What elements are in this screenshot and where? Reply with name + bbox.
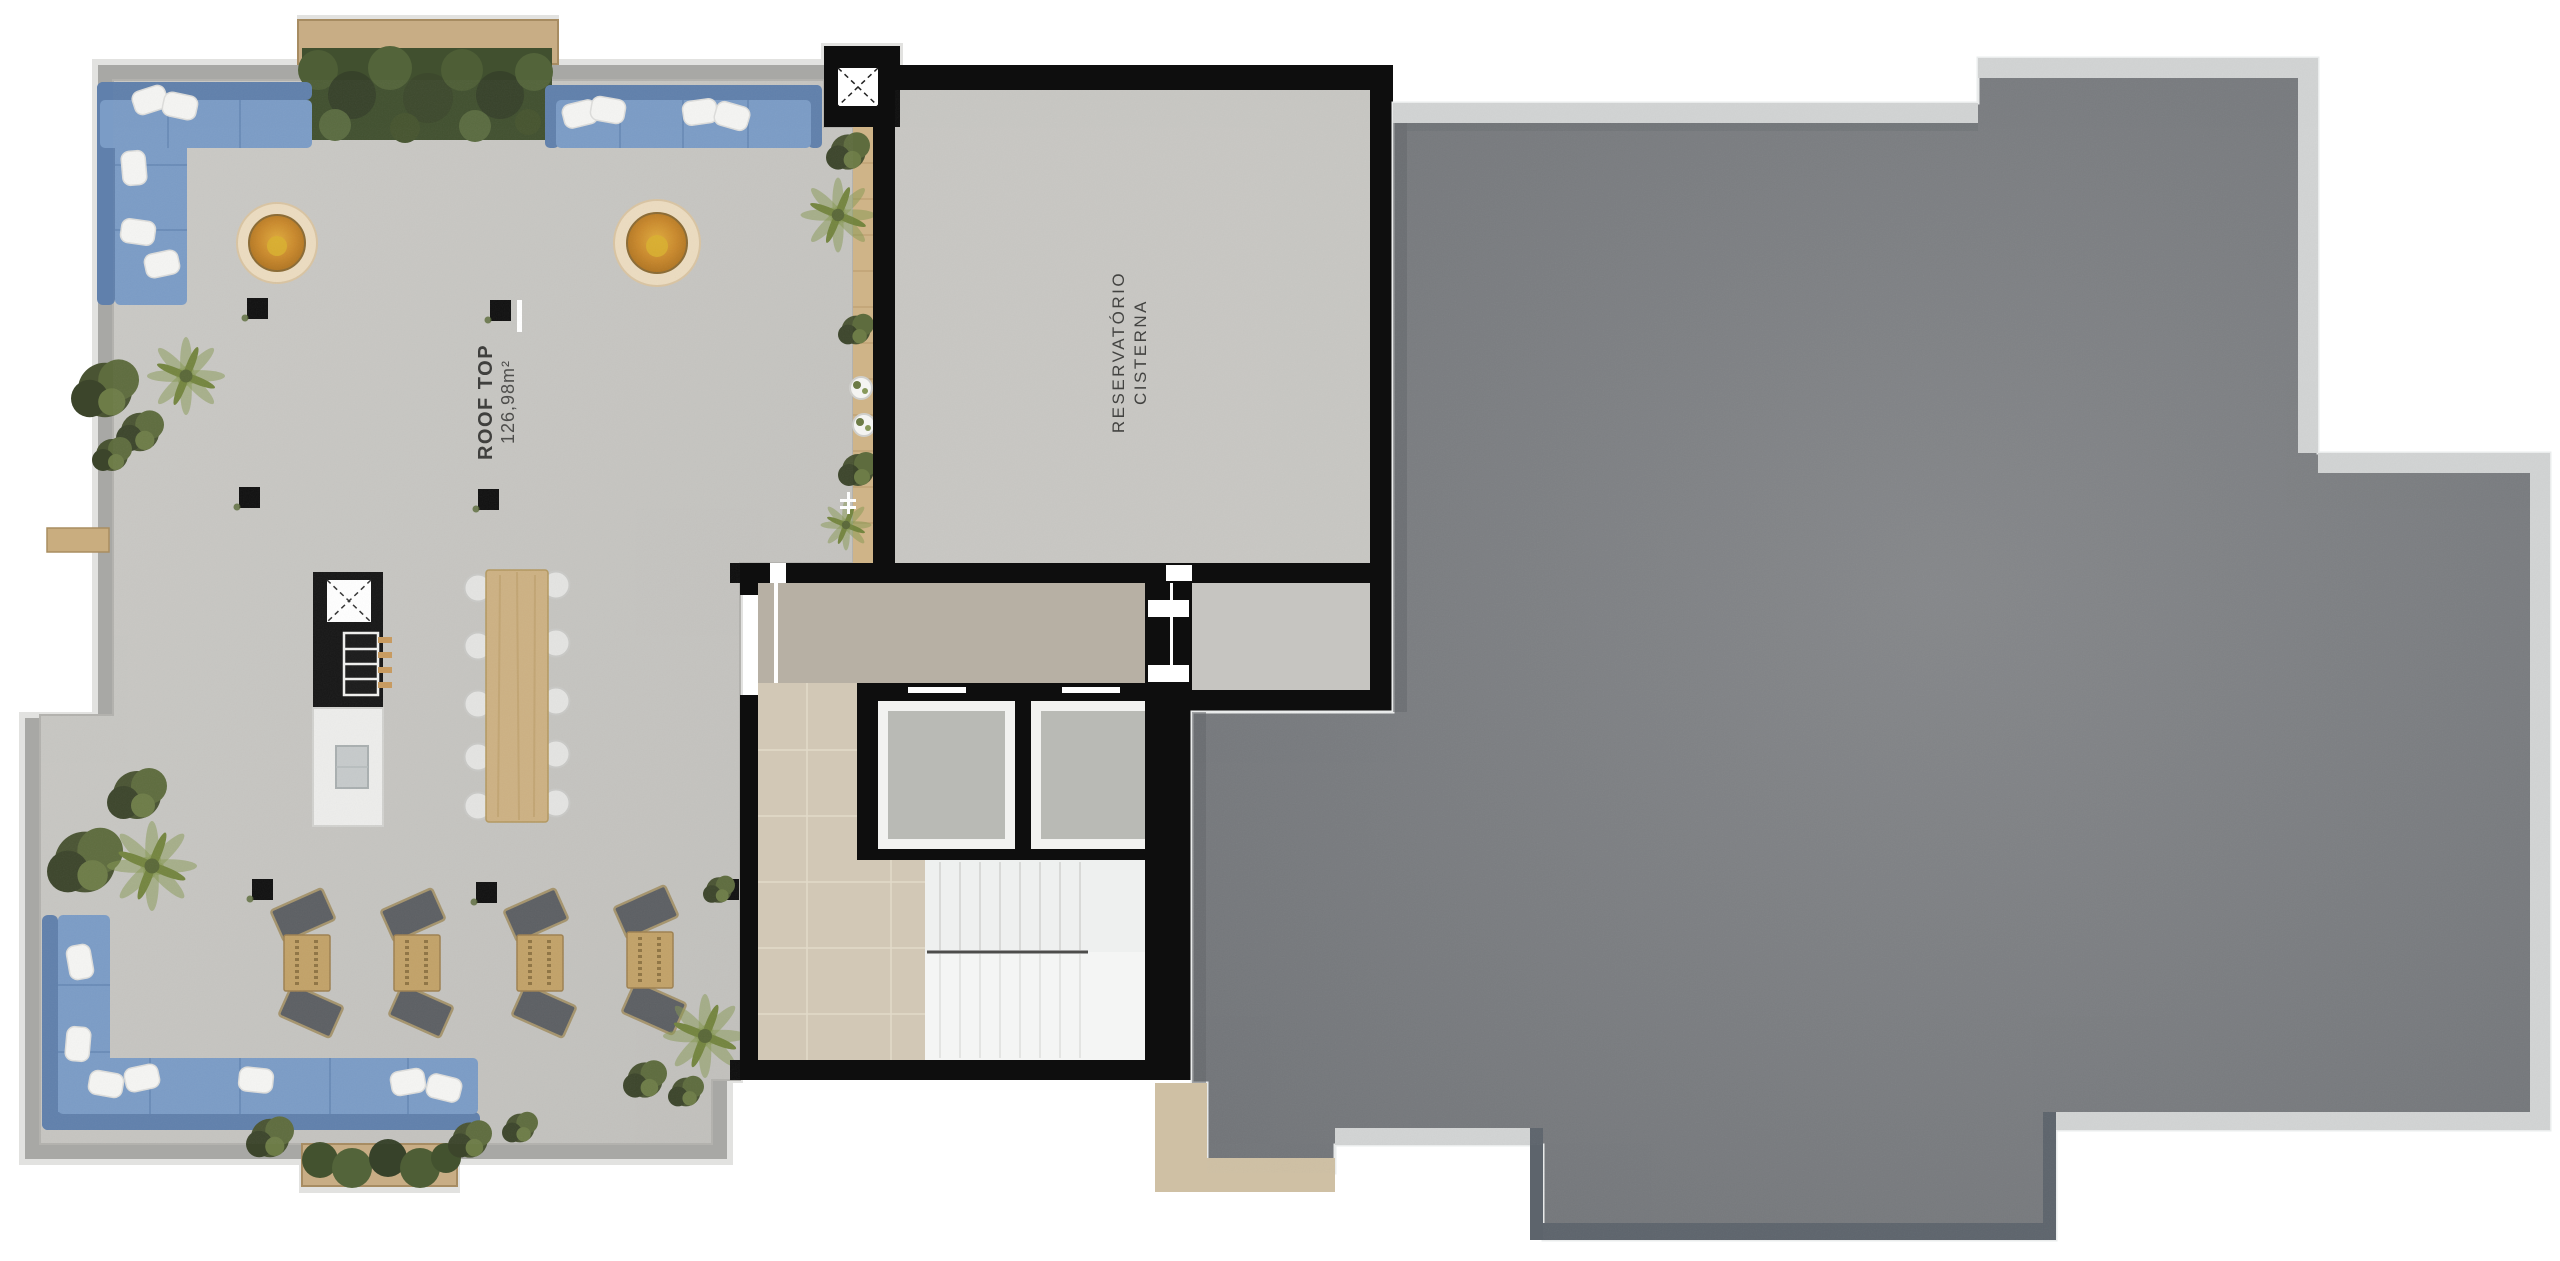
tech-area-floor (1192, 583, 1370, 690)
elevator-door-marker (908, 687, 966, 693)
elevator-shaft-icon (838, 68, 878, 106)
wall-core-left-b (740, 695, 758, 1080)
door-gap-right-2 (1148, 665, 1189, 682)
door-gap-right-1 (1148, 600, 1189, 617)
floor-plan-page: ROOF TOP 126,98m² (0, 0, 2560, 1261)
door-gap-cisterna (1166, 565, 1192, 581)
wall-cisterna-top (847, 65, 1393, 90)
wall-core-bottom (730, 1060, 1192, 1080)
door-gap-terrace (770, 563, 786, 583)
wall-core-right (1145, 583, 1192, 1060)
bistro-table (853, 414, 875, 436)
elevator-block (857, 683, 1168, 860)
wall-cisterna-right (1370, 65, 1393, 712)
elevator-1 (878, 701, 1015, 849)
wall-connector (1192, 690, 1370, 712)
elevator-lobby-floor (758, 583, 1145, 683)
staircase (925, 860, 1145, 1060)
elevator-door-marker (1062, 687, 1120, 693)
door-leaf (1170, 583, 1173, 678)
door-leaf (774, 583, 778, 683)
wall-core-top (730, 563, 1393, 583)
shaft-top (824, 46, 900, 127)
wood-ledge (47, 528, 109, 552)
wall-cisterna-left (873, 127, 895, 563)
wall-core-left-a (740, 583, 758, 595)
floor-plan-svg: ROOF TOP 126,98m² (0, 0, 2560, 1261)
bistro-table (850, 377, 872, 399)
stair-elevator-core (758, 583, 1168, 1060)
hedge-planter-bottom (302, 1139, 461, 1188)
